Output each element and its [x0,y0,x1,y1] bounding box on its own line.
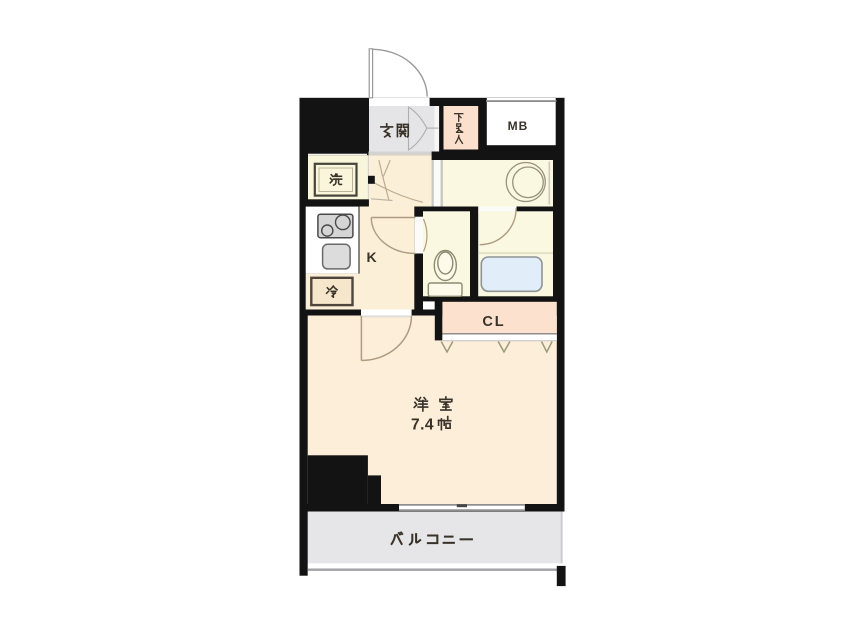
svg-text:CL: CL [482,314,505,330]
svg-text:MB: MB [508,119,529,133]
svg-text:K: K [366,249,376,265]
svg-text:7.4: 7.4 [411,417,434,434]
